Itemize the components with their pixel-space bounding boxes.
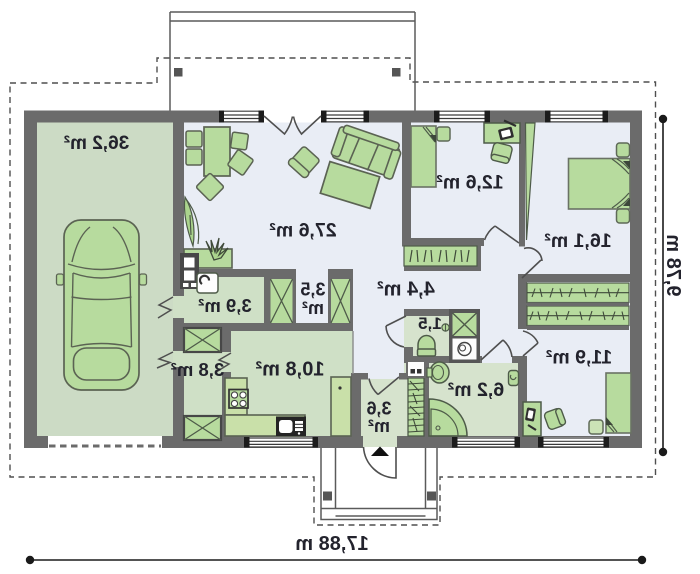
svg-text:36,2 m²: 36,2 m²	[64, 133, 129, 154]
svg-text:6,2 m²: 6,2 m²	[447, 379, 504, 401]
svg-text:m²: m²	[368, 416, 390, 436]
svg-text:1,5: 1,5	[418, 314, 442, 333]
svg-text:27,6 m²: 27,6 m²	[269, 220, 337, 242]
svg-text:4,4 m²: 4,4 m²	[377, 279, 435, 301]
svg-text:3,9 m²: 3,9 m²	[198, 295, 251, 316]
svg-text:12,6 m²: 12,6 m²	[436, 172, 504, 194]
svg-text:17,88 m: 17,88 m	[295, 533, 368, 555]
svg-text:3,8 m²: 3,8 m²	[171, 359, 224, 380]
svg-text:3,5: 3,5	[300, 279, 325, 299]
svg-text:m²: m²	[302, 298, 324, 318]
svg-text:9,78 m: 9,78 m	[662, 234, 684, 296]
svg-text:16,1 m²: 16,1 m²	[544, 230, 612, 252]
svg-text:11,9 m²: 11,9 m²	[545, 347, 612, 369]
svg-text:10,8 m²: 10,8 m²	[255, 359, 324, 381]
